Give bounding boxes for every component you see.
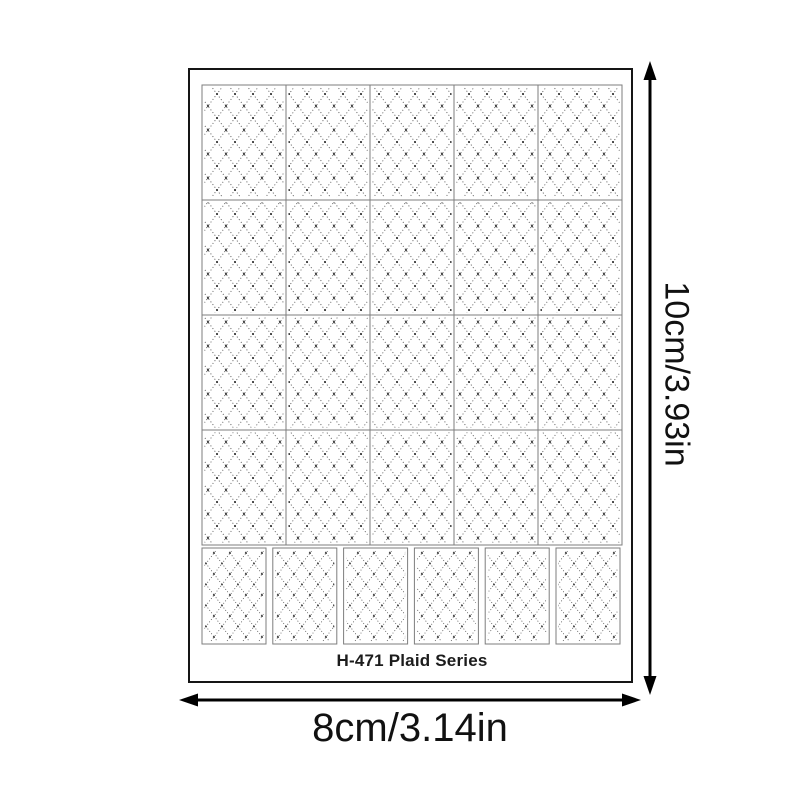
- cell-pattern: [289, 203, 368, 313]
- cell-pattern: [541, 88, 620, 198]
- cell-pattern: [457, 88, 536, 198]
- cell-pattern: [457, 203, 536, 313]
- arrow-head-up-icon: [644, 61, 657, 80]
- cell-pattern: [346, 551, 405, 642]
- arrow-head-left-icon: [179, 694, 198, 707]
- cell-pattern: [373, 203, 452, 313]
- cell-pattern: [457, 318, 536, 428]
- cell-pattern: [417, 551, 476, 642]
- cell-pattern: [205, 551, 264, 642]
- cell-pattern: [373, 88, 452, 198]
- width-dimension-label: 8cm/3.14in: [312, 706, 508, 751]
- cell-pattern: [205, 433, 284, 543]
- sticker-sheet: H-471 Plaid Series: [188, 68, 633, 683]
- cell-pattern: [205, 203, 284, 313]
- cell-pattern: [373, 433, 452, 543]
- cell-pattern: [488, 551, 547, 642]
- cell-pattern: [541, 433, 620, 543]
- cell-pattern: [205, 318, 284, 428]
- cell-pattern: [541, 203, 620, 313]
- cell-pattern: [205, 88, 284, 198]
- sheet-series-label: H-471 Plaid Series: [202, 651, 622, 671]
- arrow-head-right-icon: [622, 694, 641, 707]
- cell-pattern: [559, 551, 618, 642]
- sticker-grid: [190, 70, 631, 681]
- cell-pattern: [289, 88, 368, 198]
- product-image: H-471 Plaid Series 10cm/3.93in 8cm/3.14i…: [0, 0, 800, 800]
- cell-pattern: [541, 318, 620, 428]
- cell-pattern: [289, 433, 368, 543]
- cell-pattern: [373, 318, 452, 428]
- cell-pattern: [275, 551, 334, 642]
- cell-pattern: [289, 318, 368, 428]
- height-dimension-label: 10cm/3.93in: [657, 281, 696, 466]
- cell-pattern: [457, 433, 536, 543]
